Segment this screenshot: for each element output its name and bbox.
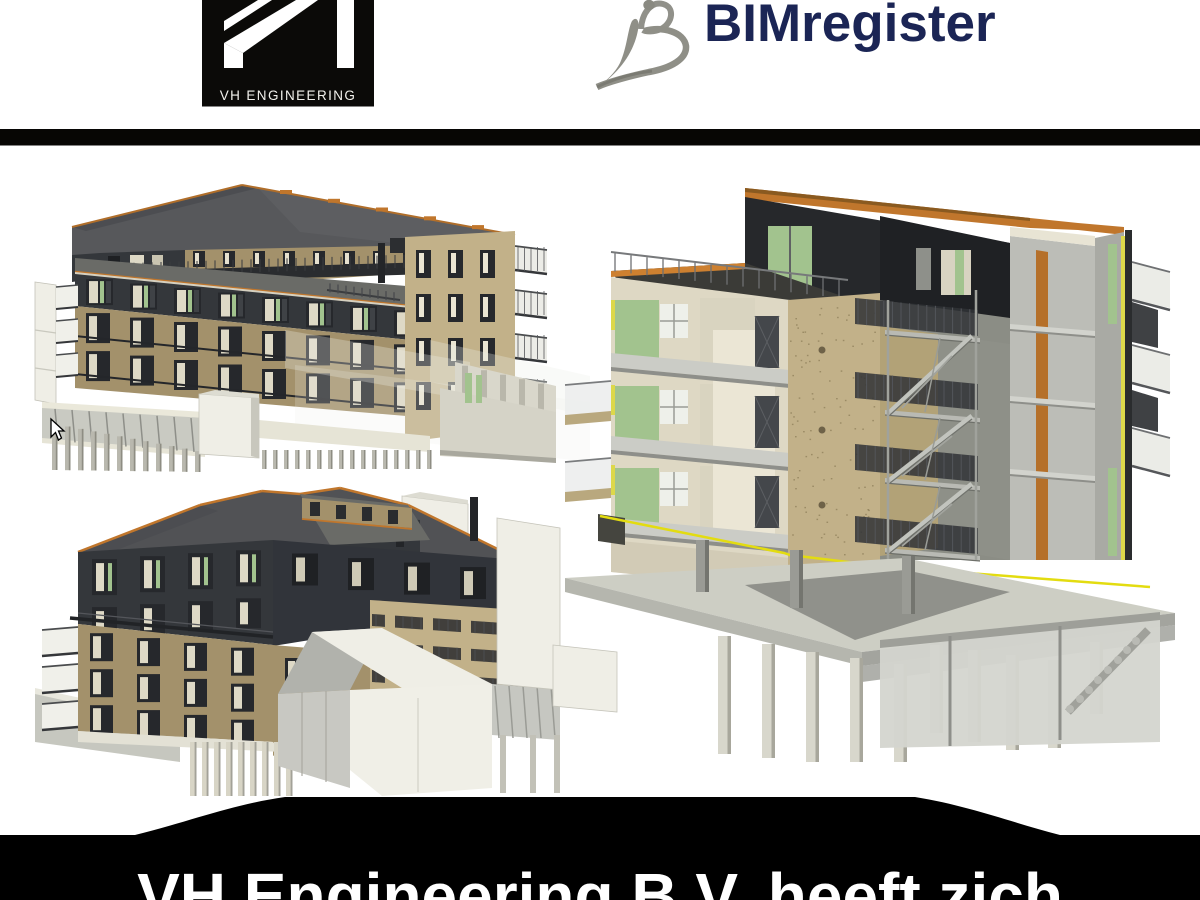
svg-text:VH ENGINEERING: VH ENGINEERING xyxy=(220,88,357,103)
svg-text:VH Engineering B.V. heeft zich: VH Engineering B.V. heeft zich xyxy=(137,860,1063,900)
svg-text:BIMregister: BIMregister xyxy=(704,0,996,53)
